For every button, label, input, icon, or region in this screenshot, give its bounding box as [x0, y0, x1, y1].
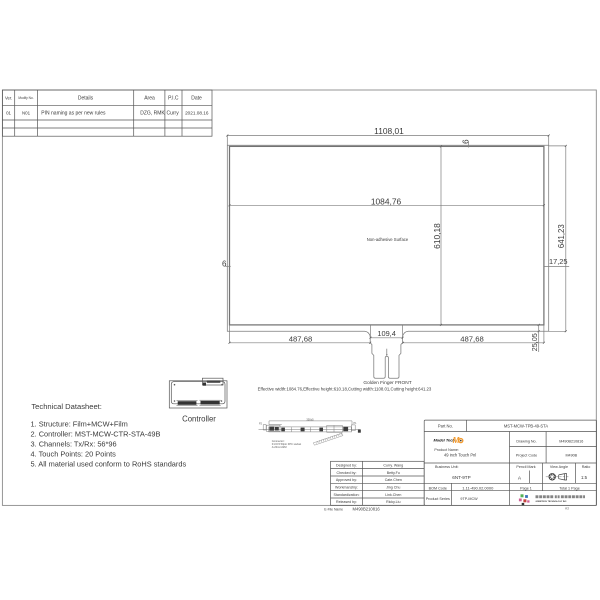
- svg-text:Cate.Chen: Cate.Chen: [385, 478, 402, 482]
- svg-text:6: 6: [222, 260, 227, 269]
- svg-text:Project Code: Project Code: [516, 453, 537, 457]
- svg-text:49 inch Touch Pnl: 49 inch Touch Pnl: [444, 453, 476, 458]
- svg-text:Controller: Controller: [182, 414, 216, 423]
- svg-text:1084,76: 1084,76: [371, 197, 402, 207]
- svg-text:M490B210816: M490B210816: [353, 507, 381, 512]
- svg-text:P.I.C: P.I.C: [168, 96, 179, 102]
- svg-text:Page 1: Page 1: [520, 486, 532, 490]
- svg-text:Date: Date: [191, 96, 202, 102]
- svg-text:MST-MCW-TPB-49-STA: MST-MCW-TPB-49-STA: [504, 423, 548, 428]
- svg-text:487,68: 487,68: [460, 335, 484, 344]
- svg-text:Details: Details: [78, 96, 94, 102]
- svg-text:2021.08.16: 2021.08.16: [185, 111, 209, 116]
- svg-text:Area: Area: [144, 96, 155, 102]
- svg-text:Ratio: Ratio: [582, 465, 591, 469]
- svg-text:M490B210816: M490B210816: [559, 439, 583, 443]
- svg-text:Modify No.: Modify No.: [18, 96, 33, 100]
- svg-text:Part No.: Part No.: [438, 423, 453, 428]
- svg-text:Workmanship:: Workmanship:: [335, 486, 358, 490]
- svg-text:Product Name:: Product Name:: [434, 448, 459, 452]
- svg-text:350±5: 350±5: [306, 417, 314, 421]
- svg-text:1. Structure: Film+MCW+Film: 1. Structure: Film+MCW+Film: [31, 419, 128, 428]
- svg-text:3. Channels: Tx/Rx: 56*96: 3. Channels: Tx/Rx: 56*96: [31, 439, 117, 448]
- svg-text:1:5: 1:5: [581, 475, 588, 480]
- svg-text:View Angle: View Angle: [550, 465, 568, 469]
- svg-text:DZG, RMK: DZG, RMK: [140, 111, 165, 117]
- svg-text:PIN naming as per new rules: PIN naming as per new rules: [41, 111, 106, 117]
- svg-text:Approved by:: Approved by:: [336, 478, 357, 482]
- svg-text:6: 6: [461, 139, 470, 144]
- svg-text:2. Controller: MST-MCW-CTR-STA: 2. Controller: MST-MCW-CTR-STA-49B: [31, 429, 161, 438]
- svg-text:Released by:: Released by:: [336, 500, 357, 504]
- svg-text:BOM Code: BOM Code: [429, 486, 447, 490]
- svg-text:01: 01: [6, 111, 11, 116]
- svg-text:E-File Name: E-File Name: [324, 508, 343, 512]
- svg-text:Jing Chu: Jing Chu: [386, 486, 400, 490]
- svg-text:109,4: 109,4: [377, 329, 396, 338]
- svg-text:6NT-9TP: 6NT-9TP: [452, 475, 470, 480]
- svg-text:1108,01: 1108,01: [374, 126, 404, 136]
- svg-text:Standardization:: Standardization:: [334, 493, 360, 497]
- svg-text:5. All material used conform t: 5. All material used conform to RoHS sta…: [31, 459, 187, 468]
- svg-text:Drawing No.: Drawing No.: [516, 439, 536, 443]
- svg-text:Business Unit:: Business Unit:: [435, 465, 459, 469]
- svg-text:Betty.Fu: Betty.Fu: [387, 471, 400, 475]
- svg-text:9TP-MCW: 9TP-MCW: [460, 497, 478, 501]
- svg-text:25,05: 25,05: [530, 333, 539, 351]
- svg-text:641,23: 641,23: [557, 224, 566, 248]
- svg-text:Total 1 Page: Total 1 Page: [559, 486, 580, 490]
- svg-text:Ver.: Ver.: [5, 96, 12, 101]
- svg-text:Ricky.Liu: Ricky.Liu: [386, 500, 400, 504]
- svg-text:Curry. Wang: Curry. Wang: [383, 464, 403, 468]
- svg-text:Pencil Mark: Pencil Mark: [516, 465, 535, 469]
- svg-text:Effective width:1084.76,Effect: Effective width:1084.76,Effective height…: [258, 387, 432, 392]
- svg-text:Link.Chen: Link.Chen: [385, 493, 401, 497]
- svg-text:487,68: 487,68: [289, 335, 313, 344]
- svg-text:Checked by:: Checked by:: [337, 471, 357, 475]
- svg-text:GREETECH TECHNOLOGY INC.: GREETECH TECHNOLOGY INC.: [536, 501, 568, 503]
- svg-text:Golden Finger FRONT: Golden Finger FRONT: [363, 380, 411, 386]
- svg-text:610,18: 610,18: [432, 223, 442, 249]
- svg-text:A:20mm±2M: A:20mm±2M: [272, 445, 287, 449]
- svg-text:Non-adhesive Surface: Non-adhesive Surface: [367, 237, 409, 242]
- svg-text:A3: A3: [565, 507, 569, 511]
- svg-text:N01: N01: [22, 111, 31, 116]
- svg-text:4. Touch Points: 20 Points: 4. Touch Points: 20 Points: [31, 449, 117, 458]
- svg-text:Designed by:: Designed by:: [336, 464, 357, 468]
- svg-text:M490B: M490B: [565, 453, 577, 457]
- svg-text:1.11-490.02.0000: 1.11-490.02.0000: [462, 486, 494, 491]
- svg-text:17,25: 17,25: [549, 257, 568, 266]
- svg-text:Product Series: Product Series: [426, 497, 450, 501]
- svg-text:Technical Datasheet:: Technical Datasheet:: [31, 402, 102, 411]
- svg-text:Curry: Curry: [166, 111, 179, 117]
